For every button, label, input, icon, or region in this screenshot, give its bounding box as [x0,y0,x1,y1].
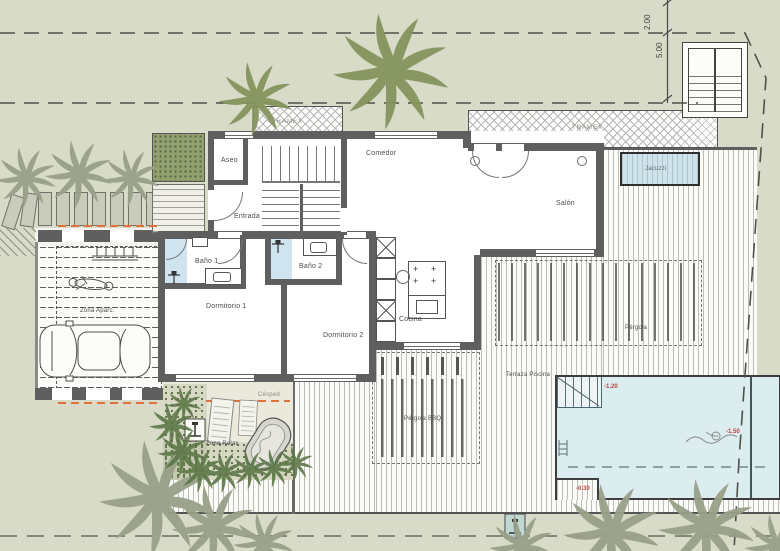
hob-burner: + [431,276,436,286]
pergola-area [495,260,702,346]
paver [74,192,88,226]
window [225,132,253,138]
cabinet-unit [376,300,396,321]
wall-segment [474,255,481,350]
pergola-bbq-posts [381,357,471,375]
island-sink [416,300,438,314]
label-tramex-right: TRAMEX [572,125,603,131]
room-label-bano2: Baño 2 [299,263,322,270]
cabinet-unit [376,279,396,300]
wall-segment [596,143,604,257]
pool-end-line [750,377,752,498]
cabinet-unit [376,321,396,342]
door-opening [502,144,524,151]
bath2-basin [310,242,327,253]
room-label-bano1: Baño 1 [195,258,218,265]
wall-segment [214,180,248,185]
room-label-salon: Salón [556,200,575,207]
planter-box [152,133,205,182]
garage-bottom-opening [122,388,142,400]
floor-plan: + + + + [0,0,780,551]
label-jacuzzi: Jacuzzi [645,166,666,172]
interior-stair-flight [303,184,340,233]
kitchen-tall-cabinets [376,237,396,343]
cabinet-unit [376,258,396,279]
label-zona-aparcamiento: Zona Aparc. [80,308,115,314]
dimension-line [663,0,672,103]
label-zona-relax: Zona Relax [206,441,239,447]
window [176,375,254,381]
label-terraza-piscina: Terraza Piscina [506,372,550,378]
wall-segment [369,233,376,382]
garage-bottom-opening [52,388,72,400]
garage-bottom-opening [86,388,110,400]
wall-segment [265,279,342,285]
paver [38,192,52,226]
hob-burner: + [413,264,418,274]
garage-top-wall [38,230,163,242]
light-circle [470,156,480,166]
room-label-cocina: Cocina [399,316,422,323]
pool-level-deep: -1.50 [726,429,740,435]
paver [110,192,124,226]
bath1-basin [213,272,231,282]
label-pergola-bbq: Pérgola BBQ [404,416,441,422]
room-label-dormitorio1: Dormitorio 1 [206,303,247,310]
pool-shower-icon [505,514,525,538]
dimension-setback-top: 2.00 [643,14,652,30]
entry-ramp [152,184,205,233]
garage-top-opening [62,230,84,242]
room-label-dormitorio2: Dormitorio 2 [323,332,364,339]
dimension-setback-side: 5.00 [655,42,664,58]
exterior-stair-divider [714,48,716,112]
room-label-entrada: Entrada [234,213,260,220]
garden-bed [163,442,295,480]
deck-southwest [294,380,376,514]
cabinet-unit [376,237,396,258]
paver [128,192,142,226]
deck-bottom-edge [168,512,780,514]
pool-steps [557,377,602,408]
window [536,250,594,256]
door-opening [341,208,347,232]
pergola-slats [498,263,697,341]
garage-top-opening [110,230,134,242]
door-opening [474,144,496,151]
label-tramex-left: TRAMEX [272,119,303,125]
garage-left-edge [35,242,38,388]
window [404,343,460,349]
hob-burner: + [413,276,418,286]
interior-stair-flight [262,184,299,233]
pool-level-beach: -0.30 [576,486,590,492]
pool-level-steps: -1.20 [604,384,618,390]
wall-segment [158,231,165,382]
interior-stair-divider [300,184,303,233]
light-circle [577,156,587,166]
wall-segment [243,139,248,184]
door-opening [218,232,242,238]
label-pergola: Pérgola [625,325,647,331]
wall-segment [265,235,271,285]
hob-burner: + [431,264,436,274]
stool [396,270,410,284]
swimming-pool [555,375,780,500]
room-label-aseo: Aseo [221,157,238,164]
wall-segment [281,283,287,382]
parking-bay-outline [56,246,162,394]
island-divider [409,295,445,296]
driveway-pavers [38,192,164,226]
door-opening [344,232,366,238]
label-cesped: Césped [258,392,280,398]
ramp-hatch [0,228,36,256]
paver [92,192,106,226]
interior-stair-landing [262,146,340,182]
kitchen-island: + + + + [408,261,446,319]
window [375,132,437,138]
window [294,375,356,381]
paver [56,192,70,226]
pergola-bbq-area [372,352,480,464]
toilet [192,237,208,247]
room-label-comedor: Comedor [366,150,396,157]
deck-bottom-left [168,478,294,514]
interior-stair-landing-edge [262,181,340,183]
